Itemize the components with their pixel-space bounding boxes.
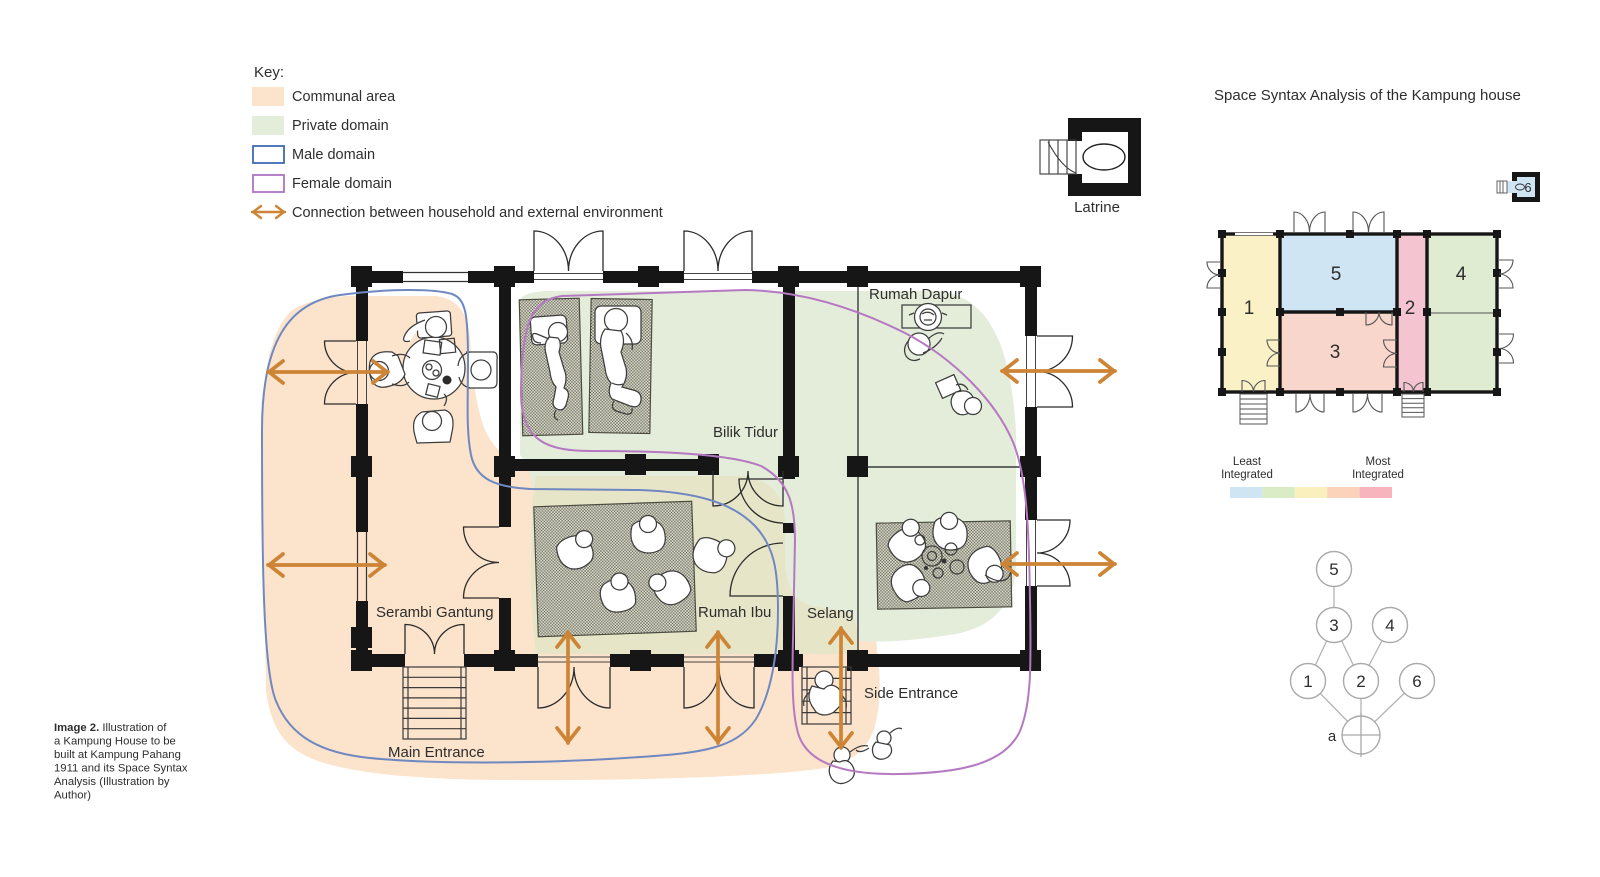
- svg-text:3: 3: [1330, 342, 1341, 363]
- svg-text:Male domain: Male domain: [292, 147, 375, 163]
- svg-text:1: 1: [1303, 672, 1312, 691]
- svg-text:Author): Author): [54, 790, 91, 802]
- svg-text:5: 5: [1331, 264, 1342, 285]
- svg-text:Analysis (Illustration by: Analysis (Illustration by: [54, 776, 170, 788]
- svg-text:Side Entrance: Side Entrance: [864, 685, 958, 702]
- svg-text:Key:: Key:: [254, 64, 284, 81]
- svg-text:Bilik Tidur: Bilik Tidur: [713, 424, 778, 441]
- svg-text:Latrine: Latrine: [1074, 199, 1120, 216]
- svg-text:4: 4: [1456, 264, 1467, 285]
- svg-text:Selang: Selang: [807, 605, 854, 622]
- svg-text:Serambi Gantung: Serambi Gantung: [376, 604, 494, 621]
- svg-text:Space Syntax Analysis of the K: Space Syntax Analysis of the Kampung hou…: [1214, 87, 1521, 104]
- svg-text:6: 6: [1524, 180, 1531, 195]
- svg-text:Rumah Ibu: Rumah Ibu: [698, 604, 771, 621]
- svg-text:Female domain: Female domain: [292, 176, 392, 192]
- svg-text:2: 2: [1356, 672, 1365, 691]
- svg-text:a Kampung House to be: a Kampung House to be: [54, 736, 176, 748]
- svg-text:Image 2. Illustration of: Image 2. Illustration of: [54, 722, 167, 734]
- svg-text:6: 6: [1412, 672, 1421, 691]
- svg-text:4: 4: [1385, 616, 1394, 635]
- svg-text:Most: Most: [1366, 456, 1392, 468]
- svg-text:5: 5: [1329, 560, 1338, 579]
- svg-text:Private domain: Private domain: [292, 118, 389, 134]
- svg-text:Connection between household a: Connection between household and externa…: [292, 205, 663, 221]
- svg-text:Main Entrance: Main Entrance: [388, 744, 485, 761]
- svg-text:Least: Least: [1233, 456, 1262, 468]
- svg-text:built at Kampung Pahang: built at Kampung Pahang: [54, 749, 181, 761]
- svg-text:1911 and its Space Syntax: 1911 and its Space Syntax: [54, 763, 188, 775]
- svg-text:2: 2: [1405, 298, 1416, 319]
- svg-text:1: 1: [1244, 298, 1255, 319]
- svg-text:a: a: [1328, 728, 1337, 745]
- svg-text:Integrated: Integrated: [1352, 469, 1404, 481]
- svg-text:Integrated: Integrated: [1221, 469, 1273, 481]
- svg-text:Communal area: Communal area: [292, 89, 396, 105]
- svg-text:3: 3: [1329, 616, 1338, 635]
- svg-text:Rumah Dapur: Rumah Dapur: [869, 286, 962, 303]
